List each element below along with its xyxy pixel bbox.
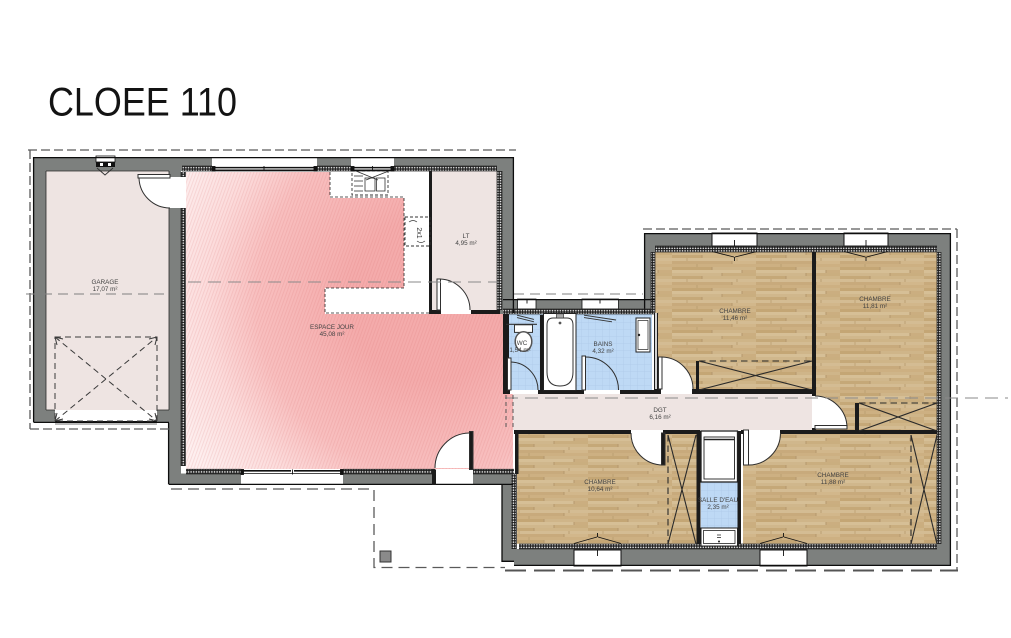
svg-text:11,88 m²: 11,88 m² xyxy=(821,479,845,486)
svg-text:11,81 m²: 11,81 m² xyxy=(863,303,887,310)
svg-text:2x1: 2x1 xyxy=(415,227,422,238)
svg-text:1,54 m²: 1,54 m² xyxy=(509,347,530,354)
svg-text:LT: LT xyxy=(463,233,470,240)
svg-text:CHAMBRE: CHAMBRE xyxy=(817,472,849,479)
svg-text:10,64 m²: 10,64 m² xyxy=(588,486,613,493)
svg-text:ESPACE JOUR: ESPACE JOUR xyxy=(310,324,354,331)
svg-text:4,32 m²: 4,32 m² xyxy=(592,348,613,355)
svg-text:17,07 m²: 17,07 m² xyxy=(93,286,118,293)
svg-text:DGT: DGT xyxy=(653,407,666,414)
svg-text:45,08 m²: 45,08 m² xyxy=(320,331,345,338)
svg-text:6,16 m²: 6,16 m² xyxy=(649,414,670,421)
svg-text:CLOEE 110: CLOEE 110 xyxy=(48,81,237,125)
svg-text:2,35 m²: 2,35 m² xyxy=(707,504,728,511)
svg-text:WC: WC xyxy=(517,340,528,347)
svg-text:SALLE D'EAU: SALLE D'EAU xyxy=(698,497,739,504)
svg-text:GARAGE: GARAGE xyxy=(92,279,119,286)
svg-text:4,95 m²: 4,95 m² xyxy=(455,240,476,247)
svg-text:11,46 m²: 11,46 m² xyxy=(723,315,747,322)
svg-text:CHAMBRE: CHAMBRE xyxy=(719,308,751,315)
svg-text:CHAMBRE: CHAMBRE xyxy=(859,296,891,303)
svg-text:BAINS: BAINS xyxy=(594,341,613,348)
svg-text:CHAMBRE: CHAMBRE xyxy=(584,479,616,486)
